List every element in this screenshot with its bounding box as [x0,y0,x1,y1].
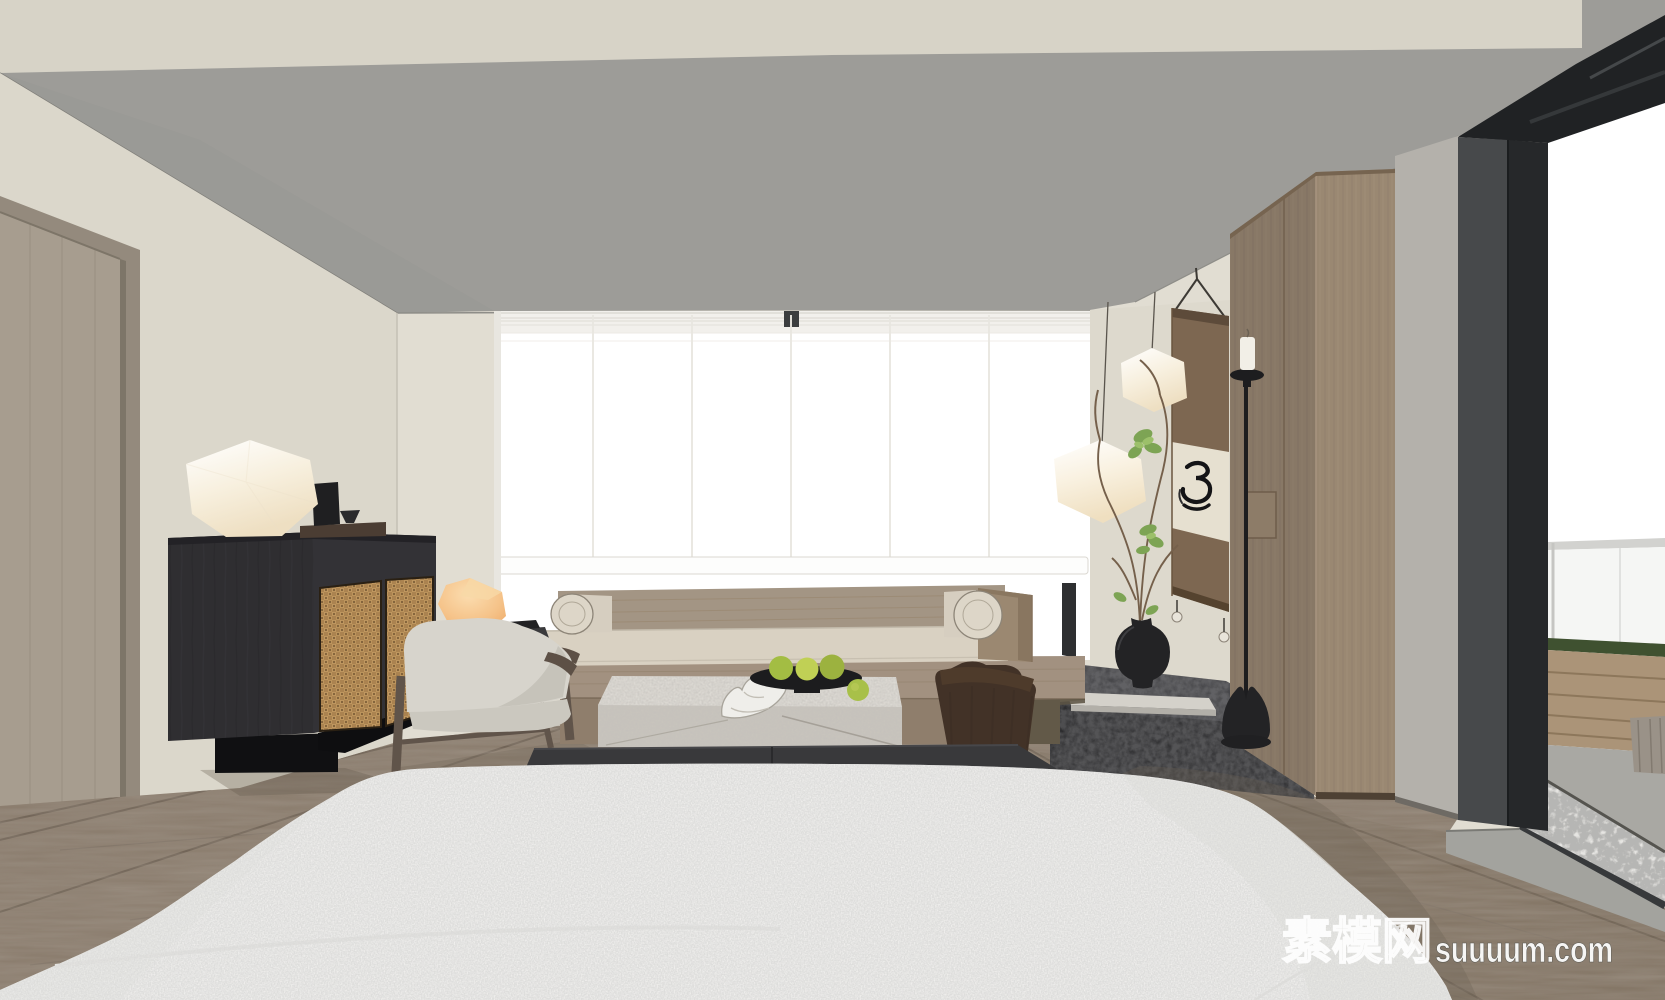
svg-text:素模网: 素模网 [1282,915,1432,969]
svg-text:suuuum.com: suuuum.com [1435,929,1613,970]
